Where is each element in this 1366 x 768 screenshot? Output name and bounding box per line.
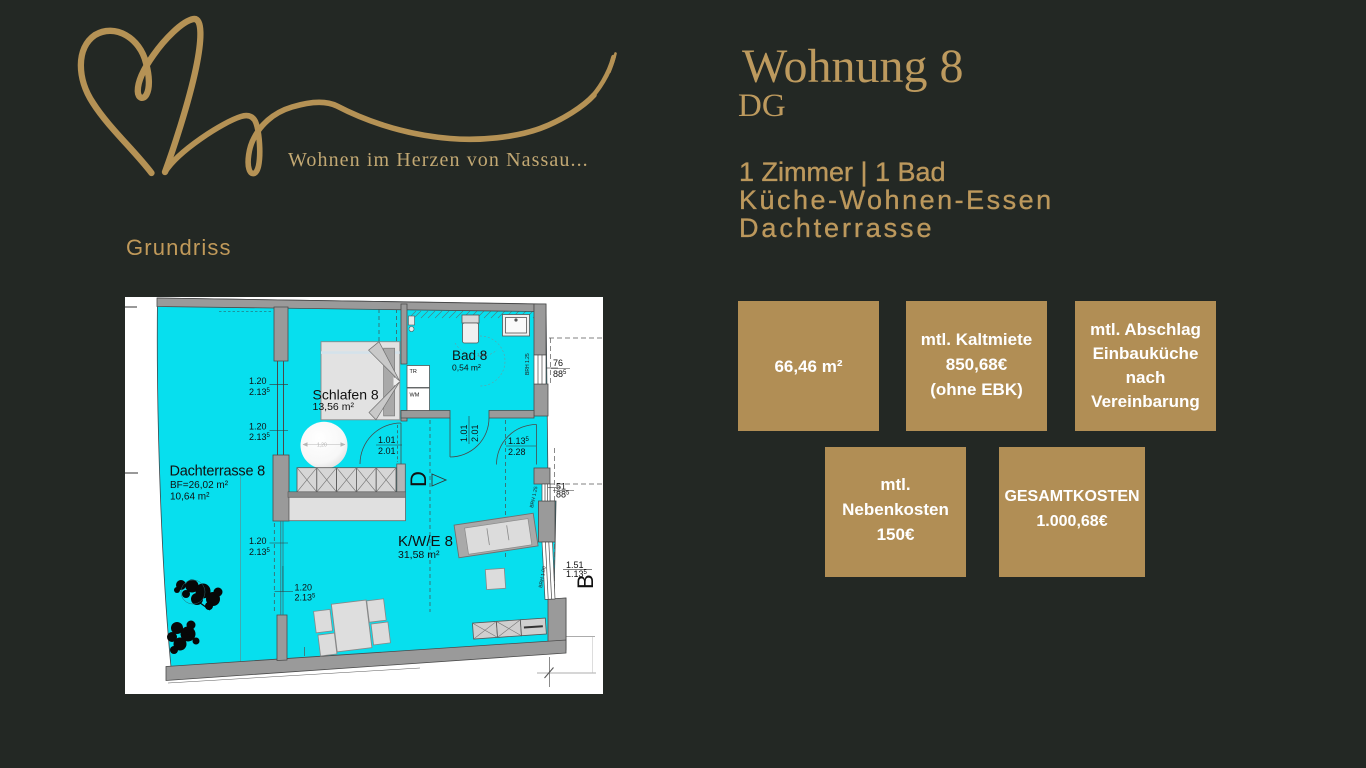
svg-text:1.20: 1.20	[295, 583, 313, 593]
svg-text:1.20: 1.20	[249, 422, 267, 432]
svg-text:Bad 8: Bad 8	[452, 348, 487, 363]
svg-text:TR: TR	[410, 369, 417, 375]
svg-text:Dachterrasse 8: Dachterrasse 8	[170, 464, 266, 480]
svg-text:D: D	[406, 471, 431, 487]
svg-text:10,64 m²: 10,64 m²	[170, 492, 210, 503]
svg-text:K/W/E 8: K/W/E 8	[398, 533, 453, 550]
svg-text:31,58 m²: 31,58 m²	[398, 549, 440, 561]
svg-text:2.01: 2.01	[378, 446, 396, 456]
svg-text:1.01: 1.01	[378, 435, 396, 445]
svg-text:76: 76	[553, 358, 563, 368]
svg-text:2.01: 2.01	[470, 424, 480, 442]
svg-text:1.01: 1.01	[459, 424, 469, 442]
svg-text:1.20: 1.20	[249, 376, 267, 386]
svg-text:2.28: 2.28	[508, 447, 526, 457]
svg-text:BF=26,02 m²: BF=26,02 m²	[170, 480, 229, 491]
svg-text:0,54 m²: 0,54 m²	[452, 363, 481, 373]
svg-text:1,20: 1,20	[317, 443, 327, 449]
svg-text:WM: WM	[410, 393, 420, 399]
svg-text:BRH 1.25: BRH 1.25	[525, 353, 531, 375]
svg-text:13,56 m²: 13,56 m²	[313, 401, 355, 413]
svg-text:B: B	[573, 574, 598, 589]
svg-text:1.20: 1.20	[249, 536, 267, 546]
